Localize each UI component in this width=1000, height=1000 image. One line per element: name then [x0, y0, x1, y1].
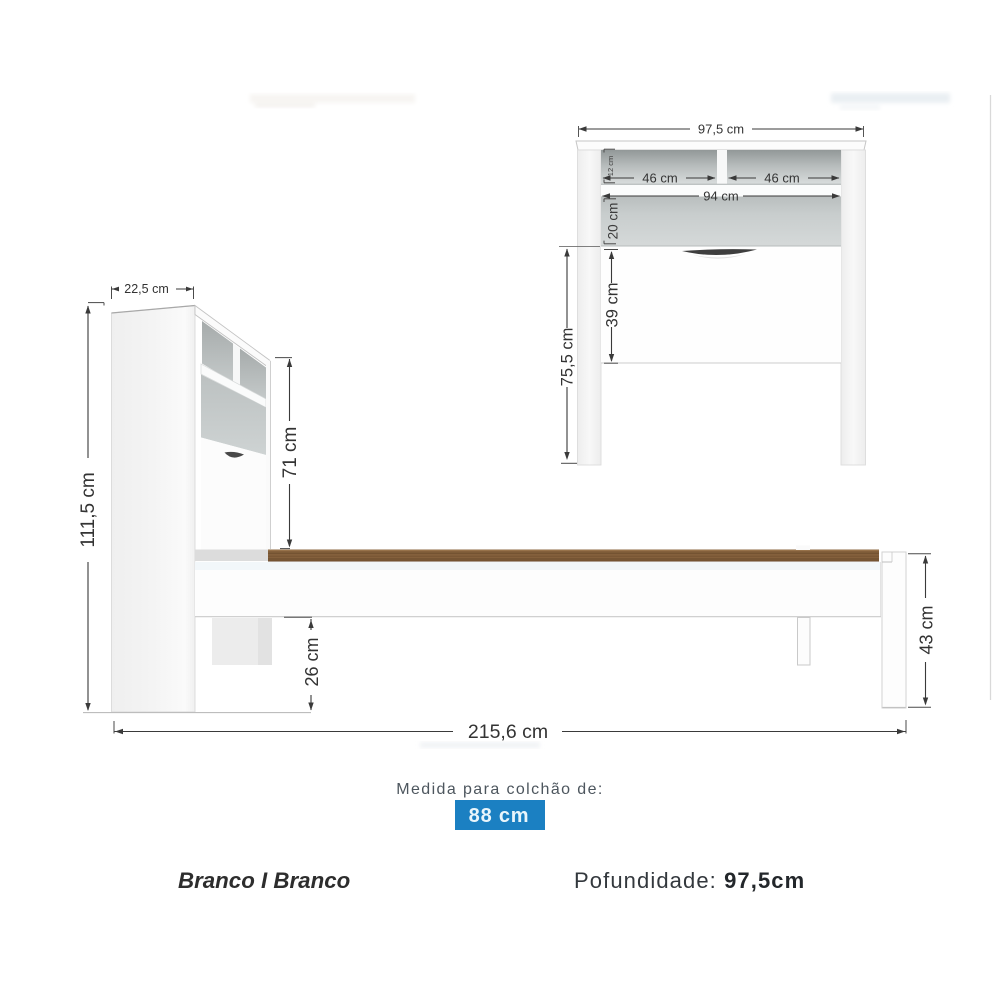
svg-text:20 cm: 20 cm — [606, 203, 621, 240]
svg-text:12 cm: 12 cm — [606, 156, 615, 176]
svg-text:Pofundidade: 97,5cm: Pofundidade: 97,5cm — [574, 868, 805, 893]
svg-text:111,5 cm: 111,5 cm — [78, 472, 99, 547]
svg-text:46 cm: 46 cm — [642, 171, 677, 186]
svg-text:94 cm: 94 cm — [703, 189, 738, 204]
svg-text:39 cm: 39 cm — [603, 283, 621, 328]
svg-text:Branco I Branco: Branco I Branco — [178, 868, 350, 893]
svg-text:26 cm: 26 cm — [302, 637, 322, 686]
svg-text:46 cm: 46 cm — [764, 171, 799, 186]
svg-text:Medida para colchão de:: Medida para colchão de: — [396, 781, 603, 798]
svg-text:43 cm: 43 cm — [916, 605, 936, 654]
svg-text:71 cm: 71 cm — [280, 427, 301, 479]
svg-text:22,5 cm: 22,5 cm — [124, 282, 168, 296]
svg-text:88 cm: 88 cm — [469, 805, 530, 827]
svg-text:215,6 cm: 215,6 cm — [468, 721, 548, 743]
svg-text:97,5 cm: 97,5 cm — [698, 122, 744, 137]
svg-text:75,5 cm: 75,5 cm — [558, 328, 576, 387]
